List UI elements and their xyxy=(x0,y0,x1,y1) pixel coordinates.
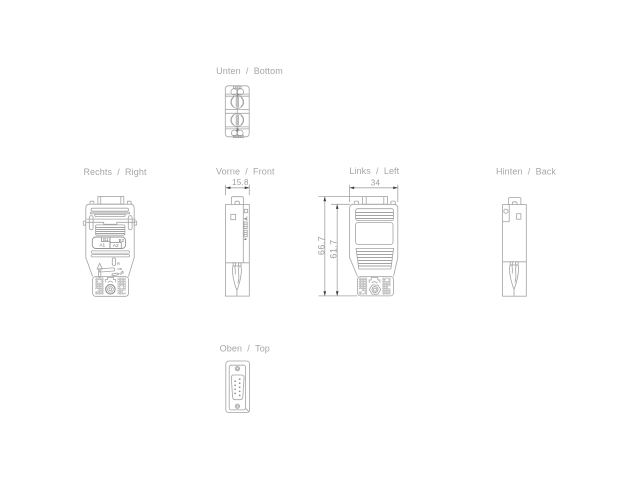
svg-text:B2: B2 xyxy=(119,238,125,243)
svg-text:A2: A2 xyxy=(113,243,119,249)
svg-text:Links / Left: Links / Left xyxy=(349,166,399,176)
svg-text:Rechts / Right: Rechts / Right xyxy=(83,167,147,177)
svg-text:Unten / Bottom: Unten / Bottom xyxy=(216,66,283,76)
svg-text:15.8: 15.8 xyxy=(232,178,249,187)
svg-text:Hinten / Back: Hinten / Back xyxy=(496,167,556,177)
svg-text:Vorne / Front: Vorne / Front xyxy=(216,167,275,177)
svg-text:66.7: 66.7 xyxy=(316,236,326,255)
svg-text:61.7: 61.7 xyxy=(329,239,339,258)
svg-text:B1: B1 xyxy=(103,237,109,242)
svg-text:off: off xyxy=(119,269,126,276)
svg-text:Oben / Top: Oben / Top xyxy=(220,344,270,354)
svg-text:34: 34 xyxy=(371,178,381,187)
svg-text:A1: A1 xyxy=(99,243,105,249)
